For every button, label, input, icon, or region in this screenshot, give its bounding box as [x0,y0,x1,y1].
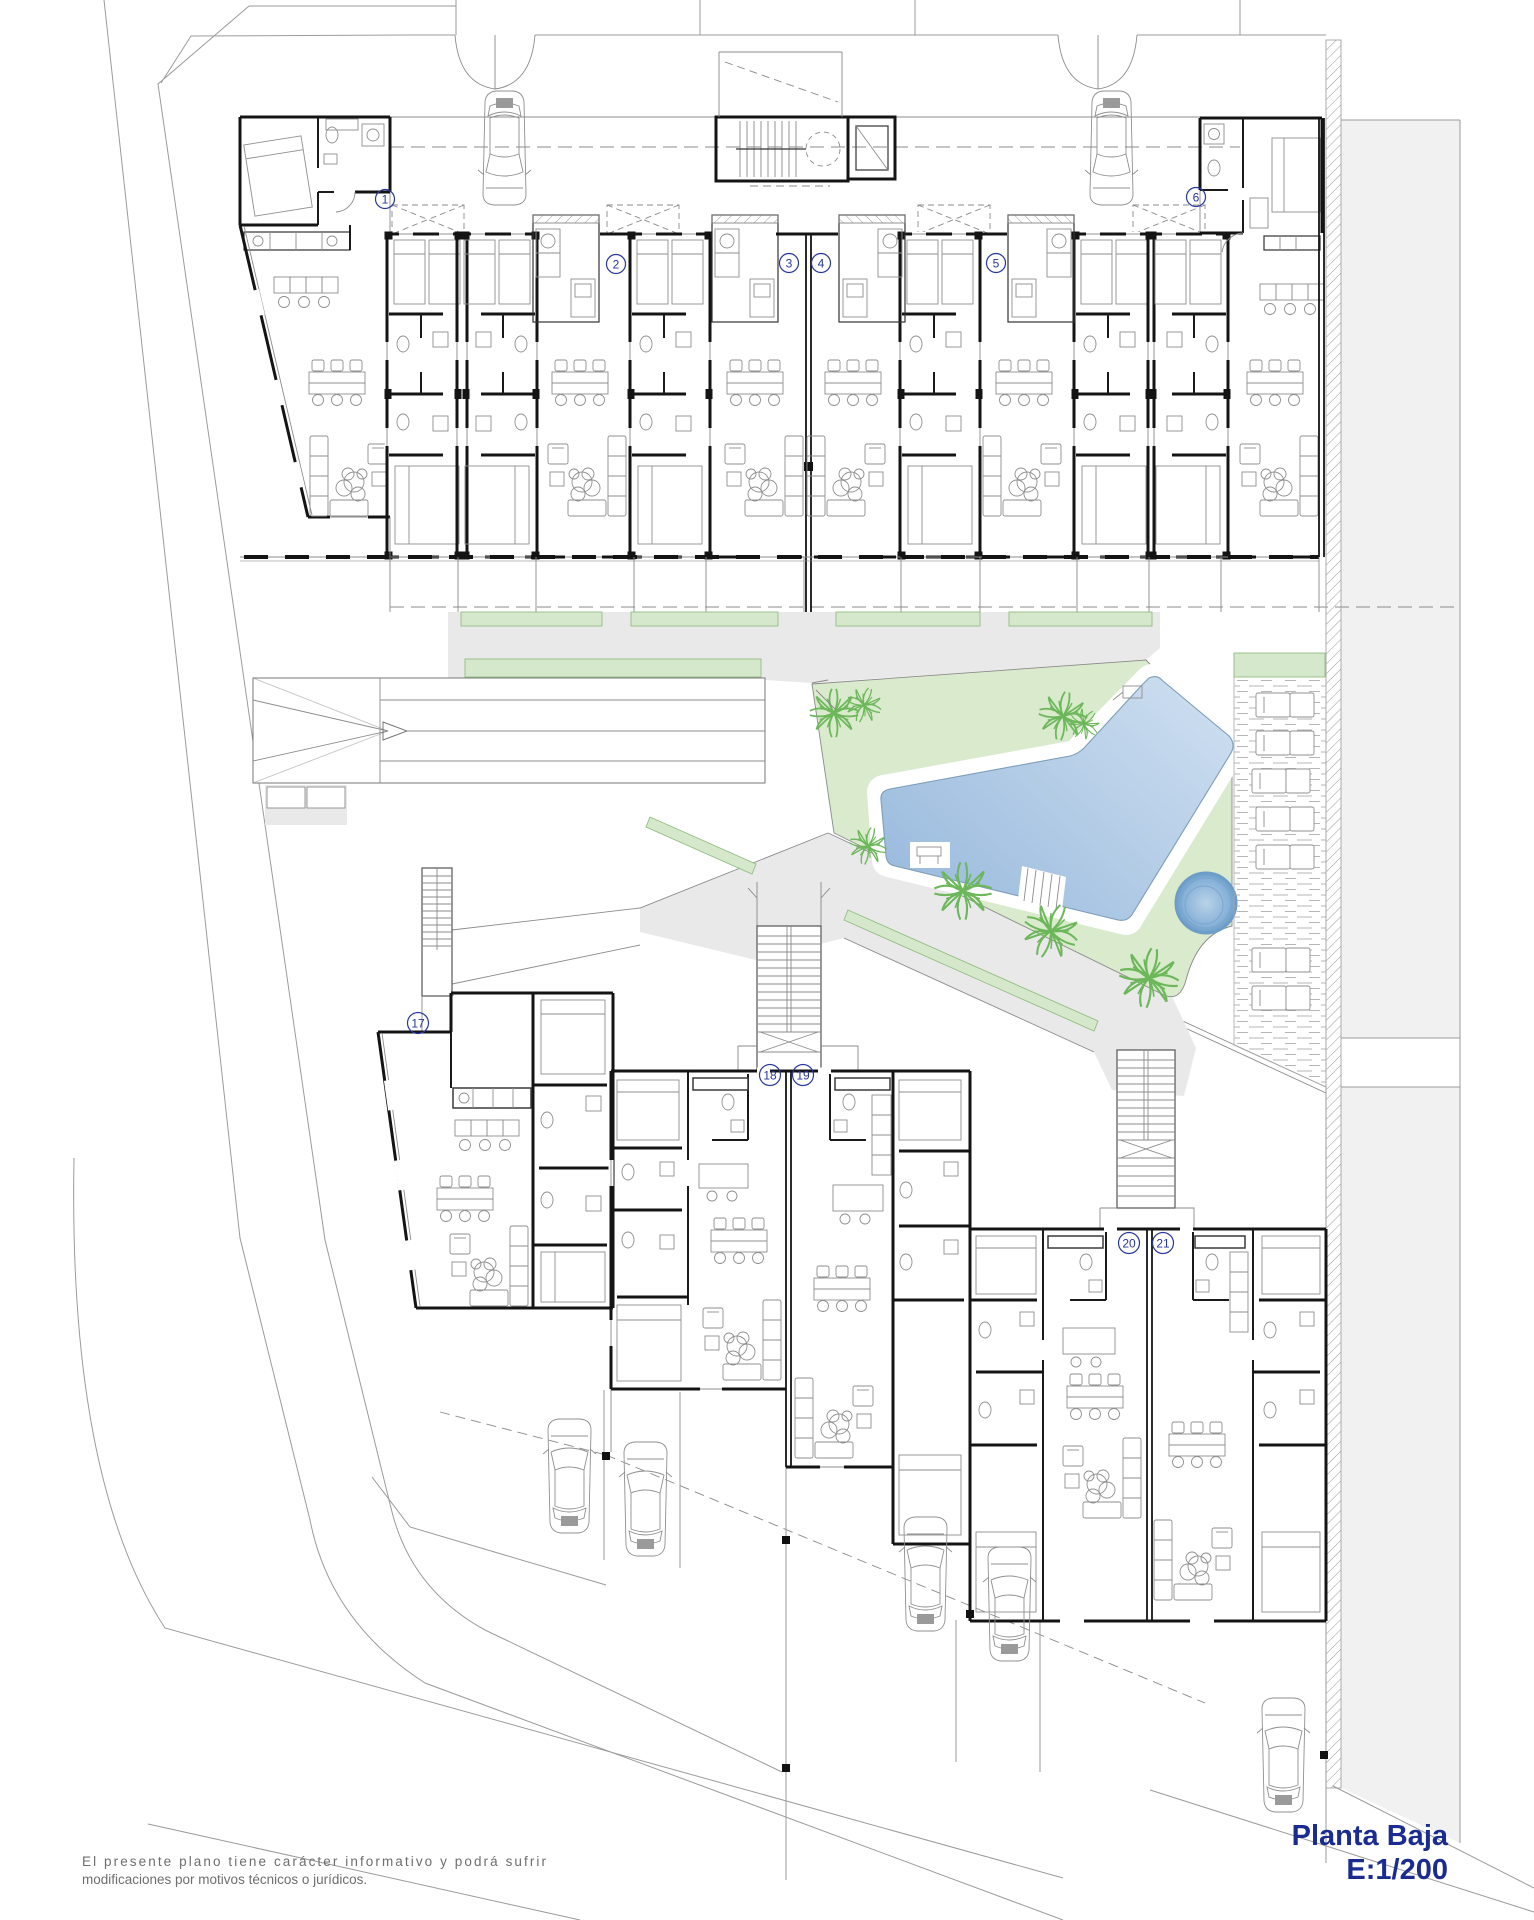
svg-text:19: 19 [796,1069,810,1083]
svg-text:modificaciones por motivos téc: modificaciones por motivos técnicos o ju… [82,1872,367,1887]
svg-text:21: 21 [1156,1237,1170,1251]
svg-text:5: 5 [993,257,1000,271]
svg-text:20: 20 [1122,1237,1136,1251]
svg-text:Planta Baja: Planta Baja [1292,1820,1449,1852]
svg-text:1: 1 [382,193,389,207]
svg-text:2: 2 [613,258,620,272]
svg-text:4: 4 [818,257,825,271]
svg-text:18: 18 [763,1069,777,1083]
svg-text:6: 6 [1193,191,1200,205]
svg-text:17: 17 [411,1017,425,1031]
svg-text:3: 3 [786,257,793,271]
svg-text:E:1/200: E:1/200 [1346,1854,1448,1886]
svg-text:El presente plano tiene ca: El presente plano tiene carácter informa… [82,1854,546,1869]
